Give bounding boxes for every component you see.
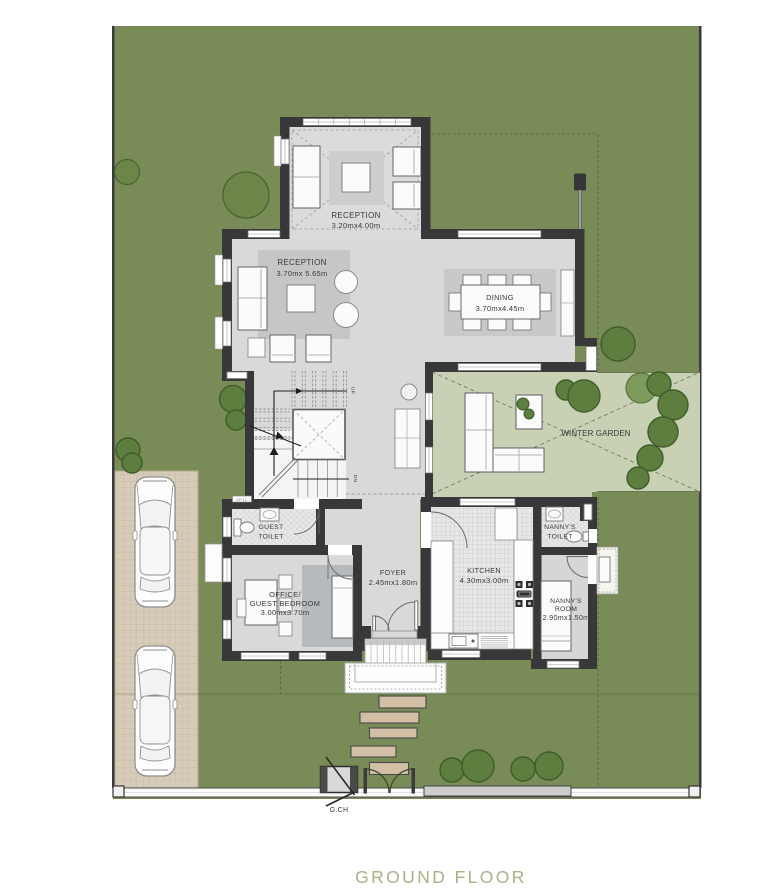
- svg-text:GUEST: GUEST: [259, 524, 284, 531]
- svg-text:NANNY'S: NANNY'S: [544, 524, 576, 531]
- svg-text:WINTER GARDEN: WINTER GARDEN: [561, 429, 630, 438]
- svg-text:FOYER: FOYER: [380, 568, 406, 577]
- svg-text:RECEPTION: RECEPTION: [331, 211, 380, 220]
- svg-text:G.CH: G.CH: [330, 807, 349, 814]
- svg-text:2.90mx1.50m: 2.90mx1.50m: [543, 613, 590, 622]
- svg-text:KITCHEN: KITCHEN: [467, 566, 501, 575]
- svg-text:GUEST BEDROOM: GUEST BEDROOM: [250, 599, 320, 608]
- svg-text:DN: DN: [352, 475, 358, 483]
- svg-text:TOILET: TOILET: [547, 534, 572, 541]
- svg-text:4.30mx3.00m: 4.30mx3.00m: [460, 576, 509, 585]
- svg-text:GP.1C: GP.1C: [236, 498, 248, 502]
- svg-text:2.45mx1.80m: 2.45mx1.80m: [369, 578, 418, 587]
- svg-text:ROOM: ROOM: [555, 606, 577, 613]
- svg-text:NANNY'S: NANNY'S: [550, 598, 582, 605]
- svg-text:3.70mx4.45m: 3.70mx4.45m: [476, 304, 525, 313]
- svg-text:TOILET: TOILET: [258, 534, 283, 541]
- svg-text:GROUND FLOOR: GROUND FLOOR: [355, 867, 527, 887]
- svg-text:DINING: DINING: [486, 293, 514, 302]
- svg-text:RECEPTION: RECEPTION: [277, 258, 326, 267]
- svg-text:OFFICE/: OFFICE/: [269, 590, 301, 599]
- svg-text:UP: UP: [350, 387, 356, 394]
- svg-text:3.00mx3.70m: 3.00mx3.70m: [261, 608, 310, 617]
- svg-text:3.70mx 5.65m: 3.70mx 5.65m: [276, 269, 327, 278]
- svg-text:3.20mx4.00m: 3.20mx4.00m: [332, 221, 381, 230]
